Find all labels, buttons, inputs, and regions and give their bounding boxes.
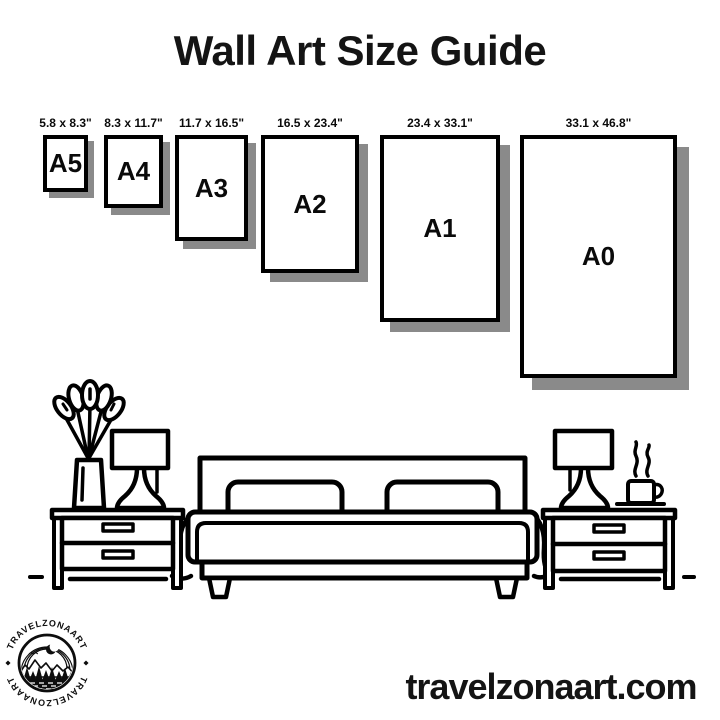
table-lamp-left-icon <box>112 431 168 508</box>
double-bed-icon <box>172 458 550 597</box>
wall-art-size-guide-poster: Wall Art Size Guide 5.8 x 8.3" A5 8.3 x … <box>0 0 720 720</box>
website-url: travelzonaart.com <box>400 666 702 708</box>
nightstand-right-icon <box>543 510 675 588</box>
bedroom-illustration <box>0 0 720 720</box>
nightstand-left-icon <box>52 510 183 588</box>
table-lamp-right-icon <box>555 431 612 508</box>
coffee-cup-icon <box>617 442 664 504</box>
travelzonaart-logo-badge: TRAVELZONAART TRAVELZONAART <box>2 618 92 708</box>
